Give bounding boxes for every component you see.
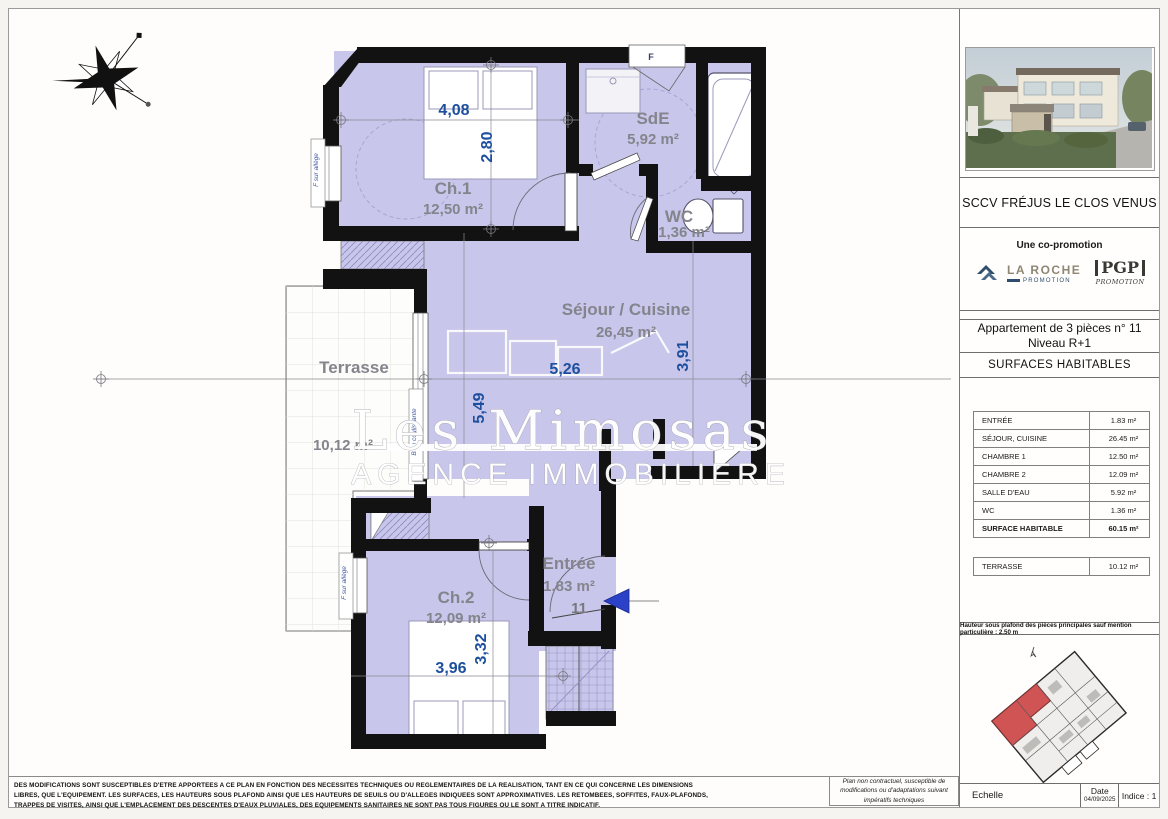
bed-ch2 [409,621,509,739]
closet-ch2 [371,511,429,541]
apartment-line2: Niveau R+1 [1028,336,1091,351]
table-row: SALLE D'EAU 5.92 m² [974,484,1150,502]
window-ch1: F sur allège [311,139,341,207]
dim-ch1-width: 4,08 [438,102,469,119]
title-strip: Echelle Date 04/09/2025 Indice : 1 [960,784,1159,807]
room-area-wc: 1,36 m² [658,224,710,241]
room-label-sejour: Séjour / Cuisine [562,300,690,319]
laroche-logo: LA ROCHE PROMOTION [974,261,1081,285]
key-plan-section [960,635,1159,784]
laroche-sub: PROMOTION [1023,278,1071,284]
title-block: SCCV FRÉJUS LE CLOS VENUS Une co-promoti… [959,9,1159,807]
row-value: 10.12 m² [1090,558,1150,576]
table-row: SÉJOUR, CUISINE 26.45 m² [974,430,1150,448]
row-value: 60.15 m² [1090,520,1150,538]
date-value: 04/09/2025 [1084,797,1116,804]
dim-sejour-right: 3,91 [675,340,692,371]
watermark-name: Les Mimosas [352,399,775,462]
indice-cell: Indice : 1 [1119,784,1159,807]
window-label-f: F [648,52,654,62]
row-label: SÉJOUR, CUISINE [974,430,1090,448]
agency-watermark: Les Mimosas AGENCE IMMOBILIERE [351,399,791,491]
floor-plan-sheet: F sur allège F sur allège Baie coulissan… [0,0,1168,819]
room-area-ch1: 12,50 m² [423,201,483,218]
table-row: ENTRÉE 1.83 m² [974,412,1150,430]
row-label: ENTRÉE [974,412,1090,430]
floor-plan-drawing: F sur allège F sur allège Baie coulissan… [9,9,959,776]
project-photo-section [960,9,1159,178]
plan-note-box: Plan non contractuel, susceptible de mod… [829,776,959,806]
apartment-title-section: Appartement de 3 pièces n° 11 Niveau R+1 [960,320,1159,353]
dim-ch2-width: 3,96 [435,660,466,677]
apartment-line1: Appartement de 3 pièces n° 11 [977,321,1141,336]
room-label-ch2: Ch.2 [438,588,475,607]
pgp-logo: PGP PROMOTION [1095,260,1145,286]
disclaimer-text: DES MODIFICATIONS SONT SUSCEPTIBLES D'ET… [14,781,714,811]
table-row-total: SURFACE HABITABLE 60.15 m² [974,520,1150,538]
room-label-ch1: Ch.1 [435,179,472,198]
bottom-divider [9,776,829,777]
row-label: WC [974,502,1090,520]
dim-ch1-height: 2,80 [479,131,496,162]
separator-strip [960,311,1159,320]
window-label-f-sur-allege-1: F sur allège [313,153,320,187]
room-area-entree: 1,83 m² [543,578,595,595]
row-value: 1.83 m² [1090,412,1150,430]
row-value: 12.50 m² [1090,448,1150,466]
key-plan-image [960,635,1158,783]
scale-label: Echelle [972,790,1003,801]
table-row: CHAMBRE 1 12.50 m² [974,448,1150,466]
table-row: CHAMBRE 2 12.09 m² [974,466,1150,484]
indice-value: Indice : 1 [1122,791,1157,801]
watermark-subtitle: AGENCE IMMOBILIERE [351,458,791,491]
row-label: CHAMBRE 2 [974,466,1090,484]
surfaces-title-section: SURFACES HABITABLES [960,353,1159,378]
laroche-name: LA ROCHE [1007,263,1081,277]
room-area-sde: 5,92 m² [627,131,679,148]
closet-ch1 [341,241,424,269]
project-name-section: SCCV FRÉJUS LE CLOS VENUS [960,178,1159,228]
dim-ch2-height: 3,32 [473,633,490,664]
room-label-sde: SdE [636,109,669,128]
compass-rose-icon [43,23,164,135]
room-area-ch2: 12,09 m² [426,610,486,627]
promoter-logos: LA ROCHE PROMOTION PGP PROMOTION [960,260,1159,286]
scale-cell: Echelle [960,784,1081,807]
sheet-border: F sur allège F sur allège Baie coulissan… [8,8,1160,808]
room-area-sejour: 26,45 m² [596,324,656,341]
unit-number-label: 11 [571,600,587,617]
building-render-image [966,48,1152,168]
date-cell: Date 04/09/2025 [1081,784,1119,807]
dim-sejour-width: 5,26 [549,361,580,378]
pgp-sub: PROMOTION [1096,278,1145,286]
keyplan-north-icon [1031,647,1036,657]
row-value: 5.92 m² [1090,484,1150,502]
laroche-dash [1007,279,1020,282]
row-label: SURFACE HABITABLE [974,520,1090,538]
project-name: SCCV FRÉJUS LE CLOS VENUS [962,196,1157,210]
surfaces-table: ENTRÉE 1.83 m² SÉJOUR, CUISINE 26.45 m² … [973,411,1150,538]
table-row: TERRASSE 10.12 m² [974,558,1150,576]
window-label-f-sur-allege-2: F sur allège [341,566,348,600]
row-label: SALLE D'EAU [974,484,1090,502]
pgp-name: PGP [1095,260,1145,276]
stairs [546,646,613,719]
room-label-terrasse: Terrasse [319,358,389,377]
row-value: 12.09 m² [1090,466,1150,484]
washbasin-icon [586,69,640,113]
laroche-roof-icon [974,261,1002,285]
surfaces-title: SURFACES HABITABLES [988,359,1131,371]
terrace-table: TERRASSE 10.12 m² [973,557,1150,576]
copromotion-section: Une co-promotion LA ROCHE PROMOTION PGP [960,228,1159,311]
copromotion-label: Une co-promotion [960,240,1159,251]
ceiling-note: Hauteur sous plafond des pièces principa… [960,622,1159,636]
row-label: TERRASSE [974,558,1090,576]
project-photo [965,47,1155,171]
surfaces-tables-section: ENTRÉE 1.83 m² SÉJOUR, CUISINE 26.45 m² … [960,378,1159,623]
table-row: WC 1.36 m² [974,502,1150,520]
plan-note-text: Plan non contractuel, susceptible de mod… [836,777,952,805]
ceiling-height-section: Hauteur sous plafond des pièces principa… [960,623,1159,635]
row-label: CHAMBRE 1 [974,448,1090,466]
window-ch2: F sur allège [339,553,367,619]
row-value: 1.36 m² [1090,502,1150,520]
row-value: 26.45 m² [1090,430,1150,448]
room-label-entree: Entrée [543,554,596,573]
